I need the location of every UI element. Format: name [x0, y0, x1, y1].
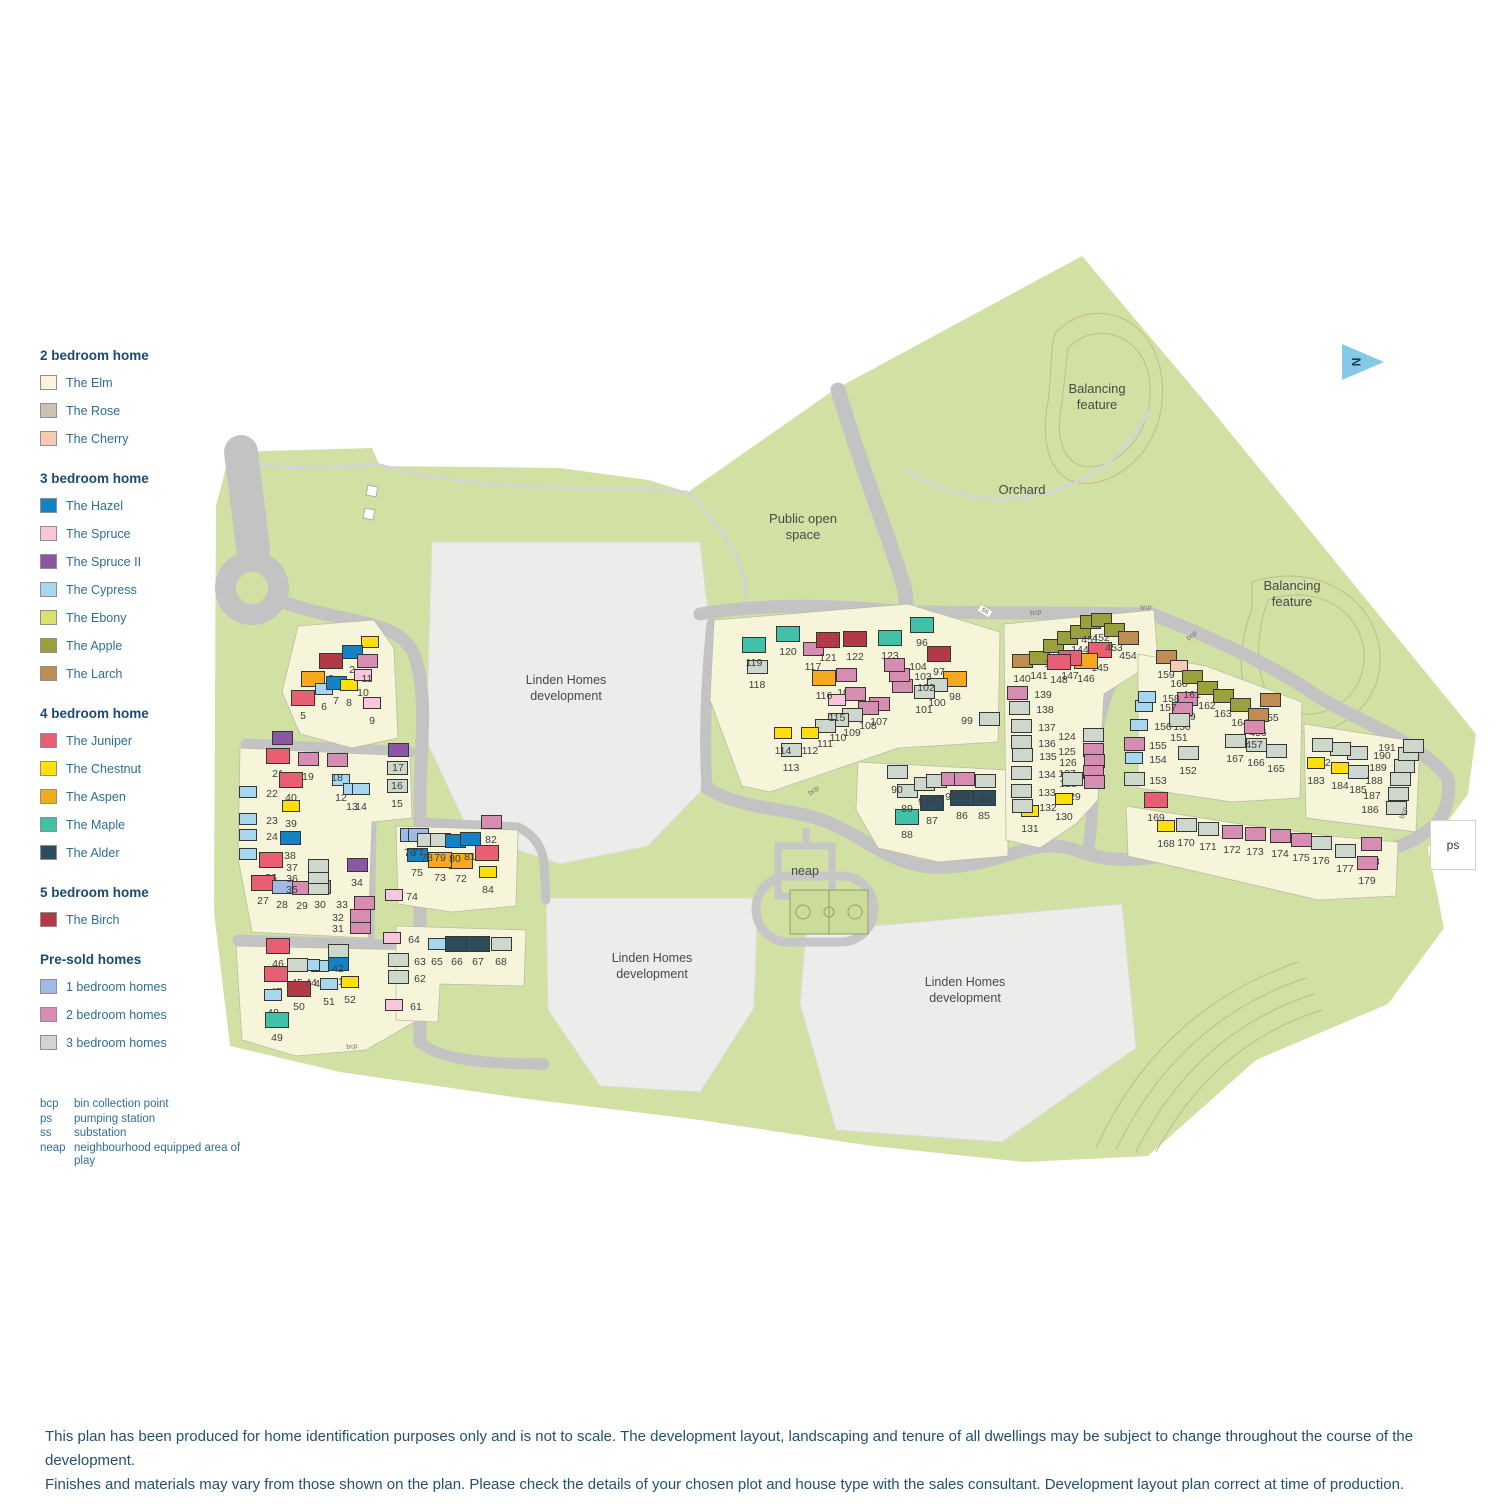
plot-number: 116 [816, 690, 833, 702]
plot-number: 19 [302, 771, 314, 783]
plot-number: 121 [819, 652, 837, 664]
plot-number: 101 [915, 704, 933, 716]
plot-building [1007, 686, 1028, 700]
plot-number: 99 [961, 715, 973, 727]
plot-building [1178, 746, 1199, 760]
plot-number: 37 [286, 862, 298, 874]
legend-item-label: The Ebony [66, 611, 126, 625]
plot-building [265, 1012, 289, 1028]
legend-swatch [40, 610, 57, 625]
plot-number: 10 [357, 687, 369, 699]
plot-building [1244, 720, 1265, 734]
plot-number: 184 [1331, 780, 1349, 792]
legend-item: 1 bedroom homes [40, 979, 240, 994]
abbreviation-key: ss [40, 1127, 74, 1141]
plot-number: 49 [271, 1032, 283, 1044]
plot-building [1009, 701, 1030, 715]
plot-number: 176 [1312, 855, 1330, 867]
plot-number: 139 [1034, 689, 1052, 701]
legend-item-label: 2 bedroom homes [66, 1008, 167, 1022]
legend-swatch [40, 1007, 57, 1022]
plot-building [291, 690, 315, 706]
legend-item: The Spruce II [40, 554, 240, 569]
plot-building [361, 636, 379, 648]
plot-number: 94 [958, 791, 970, 803]
plot-number: 88 [901, 829, 913, 841]
substation-label: ss [980, 606, 990, 616]
plot-number: 89 [901, 803, 913, 815]
plot-number: 8 [346, 697, 352, 709]
legend-swatch [40, 733, 57, 748]
abbreviation-description: substation [74, 1127, 250, 1141]
plot-building [319, 653, 343, 669]
plot-number: 23 [266, 815, 278, 827]
plot-number: 188 [1365, 775, 1383, 787]
plot-number: 146 [1077, 673, 1095, 685]
legend-item: The Alder [40, 845, 240, 860]
public-open-space-label: Public open space [769, 511, 837, 543]
plot-number: 38 [284, 850, 296, 862]
legend-swatch [40, 666, 57, 681]
abbreviation-row: neapneighbourhood equipped area of play [40, 1142, 250, 1169]
plot-number: 137 [1038, 722, 1056, 734]
plot-number: 63 [414, 956, 426, 968]
site-plan: 1234567891011121314151617181920212223242… [0, 0, 1504, 1504]
legend-item: 3 bedroom homes [40, 1035, 240, 1050]
plot-building [388, 953, 409, 967]
plot-number: 91 [918, 796, 930, 808]
plot-building [1394, 759, 1415, 773]
legend-swatch [40, 375, 57, 390]
plot-building [1176, 818, 1197, 832]
plot-building [491, 937, 512, 951]
plot-number: 35 [286, 884, 298, 896]
plot-number: 28 [276, 899, 288, 911]
plot-number: 454 [1119, 650, 1137, 662]
plot-number: 148 [1050, 674, 1068, 686]
plot-number: 40 [285, 792, 297, 804]
plot-number: 151 [1170, 732, 1188, 744]
legend-section-title: Pre-sold homes [40, 952, 240, 967]
plot-number: 64 [408, 934, 420, 946]
legend-section-title: 3 bedroom home [40, 471, 240, 486]
legend-swatch [40, 1035, 57, 1050]
plot-number: 166 [1247, 757, 1265, 769]
development-area-3-label: Linden Homes development [925, 974, 1006, 1006]
plot-building [1335, 844, 1356, 858]
legend-item-label: The Birch [66, 913, 120, 927]
legend-item-label: The Larch [66, 667, 122, 681]
legend-swatch [40, 761, 57, 776]
plot-number: 155 [1149, 740, 1167, 752]
plot-building [1083, 728, 1104, 742]
plot-number: 29 [296, 900, 308, 912]
plot-building [845, 687, 866, 701]
plot-number: 104 [909, 661, 927, 673]
plot-number: 32 [332, 912, 344, 924]
plot-number: 133 [1038, 787, 1056, 799]
plot-building [239, 813, 257, 825]
plot-building [259, 852, 283, 868]
plot-number: 18 [331, 772, 343, 784]
plot-building [954, 772, 975, 786]
legend-item: The Hazel [40, 498, 240, 513]
plot-building [481, 815, 502, 829]
plot-building [287, 958, 308, 972]
plot-number: 52 [344, 994, 356, 1006]
plot-number: 39 [285, 818, 297, 830]
legend-item-label: The Aspen [66, 790, 126, 804]
legend-item-label: The Juniper [66, 734, 132, 748]
plot-number: 141 [1030, 670, 1048, 682]
legend-item-label: 3 bedroom homes [66, 1036, 167, 1050]
legend-item-label: The Apple [66, 639, 122, 653]
plot-number: 152 [1179, 765, 1197, 777]
plot-building [385, 999, 403, 1011]
plot-number: 119 [746, 657, 763, 669]
plot-building [350, 909, 371, 923]
bcp-label: bcp [1140, 604, 1152, 612]
plot-building [328, 944, 349, 958]
plot-number: 156 [1154, 721, 1172, 733]
development-area-1-label: Linden Homes development [526, 672, 607, 704]
abbreviation-description: bin collection point [74, 1098, 250, 1112]
plot-building [239, 786, 257, 798]
plot-number: 113 [783, 762, 800, 774]
plot-number: 73 [434, 872, 446, 884]
plot-number: 175 [1292, 852, 1310, 864]
plot-number: 153 [1149, 775, 1167, 787]
plot-number: 131 [1021, 823, 1039, 835]
legend-swatch [40, 979, 57, 994]
abbreviation-description: pumping station [74, 1113, 250, 1127]
plot-building [816, 632, 840, 648]
legend-section-title: 4 bedroom home [40, 706, 240, 721]
abbreviation-row: sssubstation [40, 1127, 250, 1141]
plot-number: 170 [1177, 837, 1195, 849]
plot-number: 75 [411, 867, 423, 879]
plot-number: 98 [949, 691, 961, 703]
legend-swatch [40, 554, 57, 569]
legend-swatch [40, 789, 57, 804]
plot-number: 24 [266, 831, 278, 843]
plot-building [1011, 766, 1032, 780]
plot-number: 51 [323, 996, 335, 1008]
plot-number: 118 [749, 679, 766, 691]
plot-number: 84 [482, 884, 494, 896]
plot-building [385, 889, 403, 901]
plot-building [341, 976, 359, 988]
legend-item-label: The Maple [66, 818, 125, 832]
legend-item-label: The Chestnut [66, 762, 141, 776]
plot-number: 34 [351, 877, 363, 889]
plot-number: 186 [1361, 804, 1379, 816]
plot-building [1047, 654, 1071, 670]
plot-number: 93 [945, 791, 957, 803]
plot-building [272, 731, 293, 745]
legend-item: The Maple [40, 817, 240, 832]
plot-number: 134 [1038, 769, 1056, 781]
plot-number: 172 [1223, 844, 1241, 856]
plot-number: 183 [1307, 775, 1325, 787]
development-area-2-label: Linden Homes development [612, 950, 693, 982]
plot-building [836, 668, 857, 682]
legend-item: The Rose [40, 403, 240, 418]
plot-number: 67 [472, 956, 484, 968]
plot-number: 173 [1246, 846, 1264, 858]
legend-item: The Chestnut [40, 761, 240, 776]
plot-number: 9 [369, 715, 375, 727]
balancing-feature-1-label: Balancing feature [1068, 381, 1125, 413]
legend-item: The Ebony [40, 610, 240, 625]
legend-section-title: 2 bedroom home [40, 348, 240, 363]
plot-building [910, 617, 934, 633]
legend-swatch [40, 526, 57, 541]
legend: 2 bedroom homeThe ElmThe RoseThe Cherry3… [40, 348, 240, 1063]
plot-number: 65 [431, 956, 443, 968]
legend-swatch [40, 431, 57, 446]
plot-number: 140 [1013, 673, 1031, 685]
plot-building [1222, 825, 1243, 839]
plot-number: 112 [802, 745, 819, 757]
plot-number: 95 [979, 793, 991, 805]
plot-number: 87 [926, 815, 938, 827]
plot-building [801, 727, 819, 739]
plot-number: 27 [257, 895, 269, 907]
plot-number: 79 [434, 852, 446, 864]
plot-number: 158 [1162, 693, 1180, 705]
plot-building [1357, 856, 1378, 870]
plot-building [357, 654, 378, 668]
plot-number: 115 [829, 712, 846, 724]
plot-building [1312, 738, 1333, 752]
plot-building [279, 772, 303, 788]
plot-building [298, 752, 319, 766]
plot-building [1012, 799, 1033, 813]
plot-building [1125, 752, 1143, 764]
plot-building [1138, 691, 1156, 703]
plot-number: 7 [333, 695, 339, 707]
plot-number: 138 [1036, 704, 1054, 716]
legend-item: The Birch [40, 912, 240, 927]
legend-item-label: The Spruce II [66, 555, 141, 569]
plot-building [975, 774, 996, 788]
legend-swatch [40, 817, 57, 832]
plot-number: 120 [779, 646, 797, 658]
plot-building [1361, 837, 1382, 851]
plot-number: 167 [1226, 753, 1244, 765]
plot-building [287, 981, 311, 997]
plot-building [1012, 748, 1033, 762]
plot-building [1062, 772, 1083, 786]
plot-number: 191 [1378, 742, 1396, 754]
abbreviation-key: bcp [40, 1098, 74, 1112]
plot-building [428, 938, 446, 950]
plot-number: 68 [495, 956, 507, 968]
legend-swatch [40, 498, 57, 513]
plot-building [1390, 772, 1411, 786]
plot-number: 135 [1039, 751, 1057, 763]
plot-number: 102 [917, 682, 935, 694]
plot-number: 168 [1157, 838, 1175, 850]
plot-number: 179 [1358, 875, 1376, 887]
plot-building [352, 783, 370, 795]
plot-building [1245, 827, 1266, 841]
legend-swatch [40, 582, 57, 597]
plot-building [742, 637, 766, 653]
plot-building [774, 727, 792, 739]
plot-number: 189 [1369, 762, 1387, 774]
legend-item: The Juniper [40, 733, 240, 748]
legend-item: The Apple [40, 638, 240, 653]
legend-item-label: The Cypress [66, 583, 137, 597]
plot-building [927, 646, 951, 662]
plot-building [1055, 793, 1073, 805]
plot-building [776, 626, 800, 642]
plot-number: 42 [332, 963, 344, 975]
plot-building [1388, 787, 1409, 801]
plot-building [1084, 775, 1105, 789]
orchard-label: Orchard [999, 482, 1046, 498]
plot-building [1403, 739, 1424, 753]
plot-building [979, 712, 1000, 726]
plot-number: 130 [1055, 811, 1073, 823]
plot-building [327, 753, 348, 767]
plot-number: 6 [321, 701, 327, 713]
plot-number: 16 [391, 780, 403, 792]
footer-line-1: This plan has been produced for home ide… [45, 1425, 1465, 1473]
plot-number: 169 [1147, 812, 1165, 824]
plot-number: 457 [1245, 739, 1263, 751]
plot-number: 17 [392, 762, 404, 774]
legend-item: The Cherry [40, 431, 240, 446]
plot-building [320, 978, 338, 990]
balancing-feature-2-label: Balancing feature [1263, 578, 1320, 610]
plot-number: 31 [332, 923, 344, 935]
plot-building [388, 743, 409, 757]
plot-number: 154 [1149, 754, 1167, 766]
plot-number: 132 [1039, 802, 1057, 814]
legend-item-label: 1 bedroom homes [66, 980, 167, 994]
plot-building [264, 966, 288, 982]
legend-item-label: The Elm [66, 376, 113, 390]
plot-number: 80 [449, 853, 461, 865]
legend-abbreviations: bcpbin collection pointpspumping station… [40, 1098, 250, 1170]
plot-building [843, 631, 867, 647]
plot-building [264, 989, 282, 1001]
plot-building [308, 859, 329, 873]
plot-building [1011, 719, 1032, 733]
abbreviation-key: neap [40, 1142, 74, 1169]
plot-building [1124, 772, 1145, 786]
plot-building [479, 866, 497, 878]
plot-number: 50 [293, 1001, 305, 1013]
plot-building [1270, 829, 1291, 843]
plot-number: 36 [286, 873, 298, 885]
plot-building [1144, 792, 1168, 808]
legend-item: 2 bedroom homes [40, 1007, 240, 1022]
plot-number: 66 [451, 956, 463, 968]
plot-building [266, 938, 290, 954]
plot-number: 177 [1336, 863, 1354, 875]
legend-item: The Aspen [40, 789, 240, 804]
legend-swatch [40, 638, 57, 653]
plot-number: 72 [455, 873, 467, 885]
footer-line-2: Finishes and materials may vary from tho… [45, 1473, 1465, 1497]
plot-building [878, 630, 902, 646]
plot-number: 86 [956, 810, 968, 822]
plot-number: 5 [300, 710, 306, 722]
legend-item-label: The Spruce [66, 527, 131, 541]
plot-building [1225, 734, 1246, 748]
plot-number: 165 [1267, 763, 1285, 775]
plot-number: 14 [355, 801, 367, 813]
plot-number: 114 [775, 745, 792, 757]
plot-building [1307, 757, 1325, 769]
plot-building [1331, 762, 1349, 774]
legend-item: The Elm [40, 375, 240, 390]
plot-number: 90 [891, 784, 903, 796]
plot-number: 187 [1363, 790, 1381, 802]
plot-number: 33 [336, 899, 348, 911]
legend-item-label: The Rose [66, 404, 120, 418]
abbreviation-key: ps [40, 1113, 74, 1127]
legend-swatch [40, 912, 57, 927]
plot-building [239, 848, 257, 860]
plot-number: 15 [391, 798, 403, 810]
plot-number: 92 [930, 793, 942, 805]
plot-number: 111 [817, 738, 833, 750]
bcp-label: bcp [346, 1043, 358, 1051]
plot-number: 61 [410, 1001, 422, 1013]
plot-building [475, 845, 499, 861]
plot-building [1330, 742, 1351, 756]
plot-building [1118, 631, 1139, 645]
neap-label: neap [791, 863, 819, 879]
plot-number: 11 [362, 673, 373, 685]
plot-number: 174 [1271, 848, 1289, 860]
legend-swatch [40, 403, 57, 418]
plot-building [887, 765, 908, 779]
plot-number: 62 [414, 973, 426, 985]
pumping-station-marker: ps [1430, 820, 1476, 870]
legend-swatch [40, 845, 57, 860]
abbreviation-row: bcpbin collection point [40, 1098, 250, 1112]
plot-building [466, 936, 490, 952]
plot-building [1011, 735, 1032, 749]
plot-number: 22 [266, 788, 278, 800]
page: { "colors":{ "elm":"#fbf3da","rose":"#cd… [0, 0, 1504, 1504]
plot-building [1266, 744, 1287, 758]
plot-building [1198, 822, 1219, 836]
plot-building [280, 831, 301, 845]
plot-building [388, 970, 409, 984]
plot-building [347, 858, 368, 872]
legend-item: The Cypress [40, 582, 240, 597]
plot-building [1124, 737, 1145, 751]
north-arrow-label: N [1349, 358, 1363, 367]
plot-number: 122 [846, 651, 864, 663]
plot-building [1011, 784, 1032, 798]
plot-building [266, 748, 290, 764]
legend-item-label: The Cherry [66, 432, 129, 446]
plot-number: 85 [978, 810, 990, 822]
legend-item: The Spruce [40, 526, 240, 541]
abbreviation-row: pspumping station [40, 1113, 250, 1127]
plot-building [1311, 836, 1332, 850]
legend-item: The Larch [40, 666, 240, 681]
legend-section-title: 5 bedroom home [40, 885, 240, 900]
